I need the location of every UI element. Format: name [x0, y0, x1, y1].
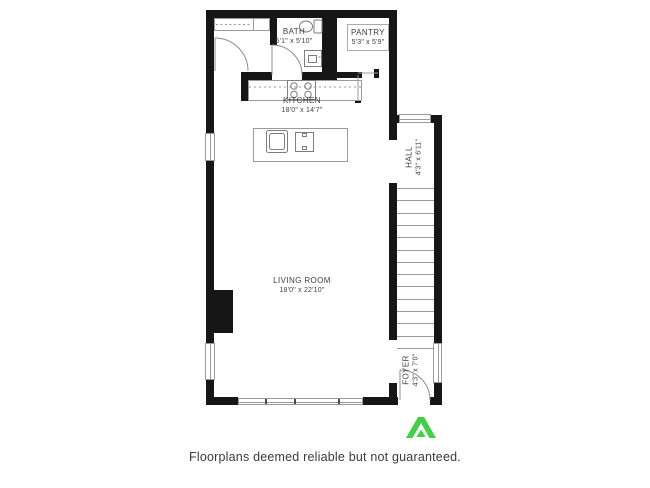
room-name: PANTRY	[340, 28, 396, 38]
kitchen-island	[254, 129, 348, 162]
floorplan-page: BATH 5'1" x 5'10" PANTRY 5'3" x 5'9" KIT…	[0, 0, 650, 488]
bath-sink-icon	[305, 51, 322, 67]
room-name: KITCHEN	[242, 96, 362, 106]
room-dims: 18'0" x 14'7"	[242, 106, 362, 115]
room-dims: 5'3" x 5'9"	[340, 38, 396, 47]
room-label-bath: BATH 5'1" x 5'10"	[249, 27, 339, 46]
room-label-pantry: PANTRY 5'3" x 5'9"	[340, 28, 396, 47]
room-label-hall: HALL 4'3" x 6'11"	[404, 139, 423, 175]
room-name: HALL	[404, 139, 414, 175]
room-dims: 4'3" x 6'11"	[415, 139, 424, 175]
stairs	[397, 188, 434, 348]
room-label-foyer: FOYER 4'3" x 7'0"	[401, 354, 420, 387]
room-label-kitchen: KITCHEN 18'0" x 14'7"	[242, 96, 362, 115]
room-label-living-room: LIVING ROOM 18'0" x 22'10"	[240, 276, 364, 295]
disclaimer-text: Floorplans deemed reliable but not guara…	[0, 450, 650, 464]
room-dims: 4'3" x 7'0"	[412, 354, 421, 387]
green-chevron-logo-icon	[403, 413, 439, 440]
fixtures-layer	[0, 0, 650, 488]
room-name: LIVING ROOM	[240, 276, 364, 286]
door-arc	[272, 45, 302, 75]
door-arc	[215, 38, 248, 71]
room-name: BATH	[249, 27, 339, 37]
room-dims: 18'0" x 22'10"	[240, 286, 364, 295]
room-dims: 5'1" x 5'10"	[249, 37, 339, 46]
room-name: FOYER	[401, 354, 411, 387]
